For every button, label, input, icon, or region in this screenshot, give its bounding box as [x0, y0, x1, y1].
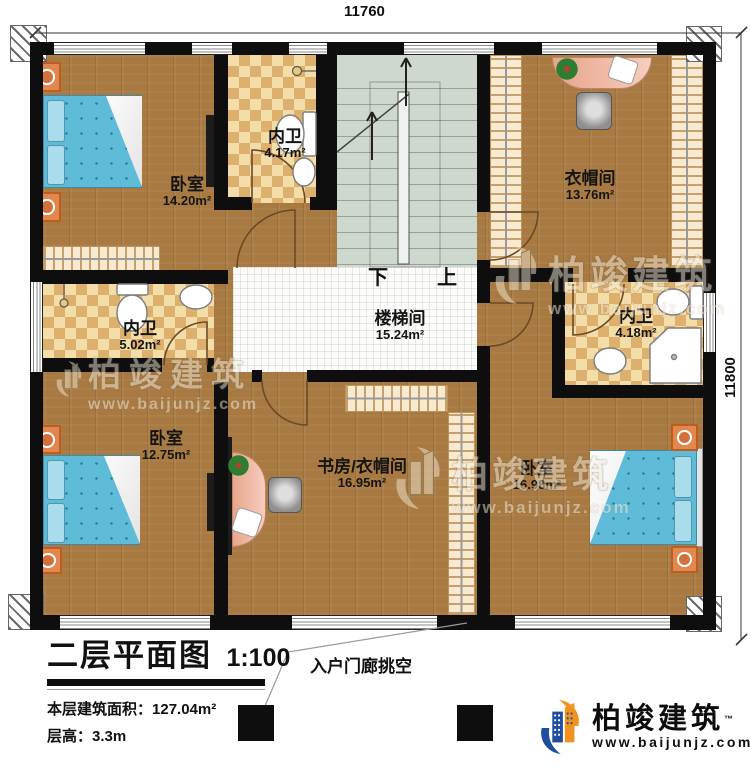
- room-name: 卧室: [142, 430, 190, 448]
- dim-right-value: 11800: [722, 357, 739, 398]
- floor-height-label: 层高：: [47, 728, 92, 745]
- wall: [628, 268, 703, 282]
- dim-top-value: 11760: [344, 3, 385, 20]
- room-name: 书房/衣帽间: [317, 458, 407, 476]
- room-name: 内卫: [615, 308, 656, 326]
- wall: [214, 382, 228, 615]
- room-area: 12.75m²: [142, 448, 190, 462]
- room-label-bedroom3: 卧室 16.98m²: [513, 460, 561, 492]
- wall: [310, 197, 316, 210]
- room-name: 内卫: [119, 320, 160, 338]
- room-name: 楼梯间: [375, 310, 426, 328]
- bed1-pillow: [47, 145, 65, 185]
- cloakroom-wardrobe-right: [671, 55, 703, 268]
- room-area: 5.02m²: [119, 338, 160, 352]
- room-area: 4.17m²: [264, 146, 305, 160]
- window: [515, 615, 670, 630]
- porch-void-label: 入户门廊挑空: [310, 652, 412, 677]
- bed2-pillow: [47, 503, 65, 543]
- room-area: 16.98m²: [513, 478, 561, 492]
- title-underline-thin: [47, 689, 265, 690]
- cloakroom-wardrobe-left: [490, 55, 522, 268]
- brand-logo: 柏竣建筑™ www.baijunjz.com: [534, 698, 750, 756]
- room-label-bath-right: 内卫 4.18m²: [615, 308, 656, 340]
- floor-plan-page: 卧室 14.20m² 内卫 4.17m² 衣帽间 13.76m² 内卫 5.02…: [0, 0, 750, 768]
- floor-height-value: 3.3m: [92, 728, 126, 745]
- room-label-stair-hall: 楼梯间 15.24m²: [375, 310, 426, 342]
- window: [404, 42, 494, 55]
- floor-area-value: 127.04m²: [152, 701, 216, 718]
- window: [30, 282, 43, 372]
- brand-name-text: 柏竣建筑: [592, 703, 724, 735]
- scale-label: 1:100: [226, 644, 290, 672]
- stair-down-label: 下: [368, 261, 388, 290]
- study-closet-top: [345, 385, 448, 412]
- room-label-cloakroom: 衣帽间 13.76m²: [565, 170, 616, 202]
- floor-area-line: 本层建筑面积：127.04m²: [47, 698, 290, 719]
- wall: [477, 55, 490, 212]
- floor-area-label: 本层建筑面积：: [47, 701, 152, 718]
- wall: [228, 197, 252, 210]
- stair-treads: [337, 88, 477, 267]
- brand-url: www.baijunjz.com: [592, 734, 750, 750]
- brand-text: 柏竣建筑™ www.baijunjz.com: [592, 704, 750, 750]
- window: [192, 42, 232, 55]
- room-area: 13.76m²: [565, 188, 616, 202]
- dim-tick: [736, 634, 747, 645]
- room-name: 卧室: [513, 460, 561, 478]
- study-closet-right: [448, 412, 475, 615]
- bedroom1-closet: [43, 246, 160, 272]
- wall: [252, 370, 262, 382]
- room-name: 卧室: [163, 176, 211, 194]
- brand-logo-icon: [534, 698, 586, 756]
- wall: [552, 282, 565, 385]
- bed3-pillow: [674, 500, 692, 542]
- plant: [556, 58, 578, 80]
- window: [60, 615, 210, 630]
- room-area: 4.18m²: [615, 326, 656, 340]
- wall: [490, 268, 573, 282]
- window: [289, 42, 327, 55]
- title-underline: [47, 679, 265, 686]
- room-area: 16.95m²: [317, 476, 407, 490]
- brand-tm: ™: [724, 714, 737, 724]
- nightstand: [671, 424, 698, 451]
- room-name: 内卫: [264, 128, 305, 146]
- brand-name: 柏竣建筑™: [592, 704, 750, 734]
- room-label-bath-left: 内卫 5.02m²: [119, 320, 160, 352]
- wall: [307, 370, 480, 382]
- room-label-study: 书房/衣帽间 16.95m²: [317, 458, 407, 490]
- wall: [43, 270, 228, 284]
- room-label-bedroom2: 卧室 12.75m²: [142, 430, 190, 462]
- room-area: 14.20m²: [163, 194, 211, 208]
- bed1-pillow: [47, 100, 65, 142]
- nightstand: [671, 546, 698, 573]
- porch-column: [457, 705, 493, 741]
- window: [703, 293, 716, 352]
- dim-tick: [736, 27, 747, 38]
- window: [54, 42, 145, 55]
- wall: [207, 358, 214, 372]
- window: [292, 615, 437, 630]
- room-area: 15.24m²: [375, 328, 426, 342]
- wall: [43, 358, 162, 372]
- page-title: 二层平面图: [47, 638, 212, 673]
- wall: [552, 385, 703, 398]
- wall: [214, 55, 228, 210]
- floor-height-line: 层高：3.3m: [47, 725, 290, 746]
- desk-chair: [268, 477, 302, 513]
- room-name: 衣帽间: [565, 170, 616, 188]
- bed2-pillow: [47, 460, 65, 500]
- bed3-headboard: [696, 448, 703, 547]
- wall: [477, 346, 490, 615]
- title-block: 二层平面图 1:100 本层建筑面积：127.04m² 层高：3.3m: [47, 630, 290, 746]
- wall: [316, 55, 337, 210]
- room-label-bath-top: 内卫 4.17m²: [264, 128, 305, 160]
- bed3-pillow: [674, 456, 692, 498]
- wall: [477, 260, 490, 303]
- plant: [228, 455, 249, 476]
- window: [542, 42, 657, 55]
- desk-chair: [576, 92, 612, 130]
- room-label-bedroom1: 卧室 14.20m²: [163, 176, 211, 208]
- stair-up-label: 上: [437, 261, 457, 290]
